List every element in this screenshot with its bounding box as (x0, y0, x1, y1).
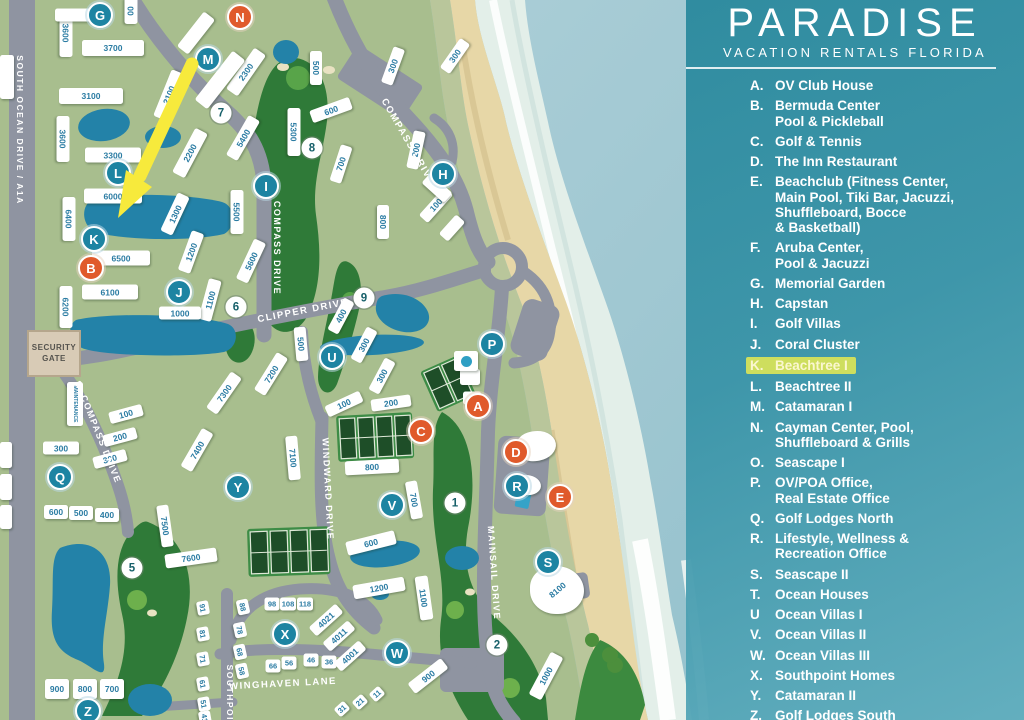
map-marker-l[interactable]: L (105, 160, 131, 186)
building-300: 300 (43, 442, 79, 455)
building-800: 800 (345, 459, 400, 476)
legend-item-letter: G. (750, 276, 775, 291)
legend-item-letter: J. (750, 337, 775, 352)
legend-item-x[interactable]: X.Southpoint Homes (750, 668, 1018, 683)
map-marker-m[interactable]: M (195, 46, 221, 72)
legend-item-h[interactable]: H.Capstan (750, 296, 1018, 311)
legend-item-b[interactable]: B.Bermuda CenterPool & Pickleball (750, 98, 1018, 129)
map-marker-9: 9 (354, 288, 375, 309)
legend-item-t[interactable]: T.Ocean Houses (750, 587, 1018, 602)
legend-item-label: Catamaran I (775, 399, 852, 414)
brand-tagline: VACATION RENTALS FLORIDA (686, 45, 1024, 60)
legend-item-letter: R. (750, 531, 775, 562)
map-marker-e[interactable]: E (547, 484, 573, 510)
legend-item-label: Capstan (775, 296, 828, 311)
legend-item-letter: Q. (750, 511, 775, 526)
map-marker-c[interactable]: C (408, 418, 434, 444)
legend-item-c[interactable]: C.Golf & Tennis (750, 134, 1018, 149)
legend-item-letter: I. (750, 316, 775, 331)
building-71: 71 (196, 651, 210, 667)
legend-item-label: Memorial Garden (775, 276, 885, 291)
legend-item-label: Beachtree II (775, 379, 852, 394)
legend-item-k[interactable]: K.Beachtree I (746, 357, 856, 374)
map-marker-r[interactable]: R (504, 473, 530, 499)
legend-item-o[interactable]: O.Seascape I (750, 455, 1018, 470)
map-marker-8: 8 (302, 138, 323, 159)
legend-item-letter: E. (750, 174, 775, 235)
building (454, 351, 478, 371)
legend-item-letter: Y. (750, 688, 775, 703)
building-91: 91 (196, 600, 210, 616)
building-46: 46 (304, 654, 319, 667)
legend-item-e[interactable]: E.Beachclub (Fitness Center,Main Pool, T… (750, 174, 1018, 235)
map-marker-2: 2 (487, 635, 508, 656)
map-marker-s[interactable]: S (535, 549, 561, 575)
legend-item-letter: H. (750, 296, 775, 311)
map-marker-a[interactable]: A (465, 393, 491, 419)
road-label-compass-drive: COMPASS DRIVE (272, 201, 282, 295)
building-66: 66 (266, 660, 281, 673)
map-marker-5: 5 (122, 558, 143, 579)
legend-item-y[interactable]: Y.Catamaran II (750, 688, 1018, 703)
legend-item-label: Ocean Villas I (775, 607, 863, 622)
legend-item-label: Ocean Villas III (775, 648, 870, 663)
road-label-southpoint: SOUTHPOINT (225, 665, 235, 720)
legend-item-letter: T. (750, 587, 775, 602)
legend-item-label: Beachtree I (775, 358, 848, 373)
legend-item-z[interactable]: Z.Golf Lodges South (750, 708, 1018, 720)
legend-item-letter: U (750, 607, 775, 622)
legend-item-letter: W. (750, 648, 775, 663)
legend-item-label: Bermuda CenterPool & Pickleball (775, 98, 884, 129)
security-gate: SECURITY GATE (27, 330, 81, 377)
legend-item-label: Aruba Center,Pool & Jacuzzi (775, 240, 870, 271)
map-marker-6: 6 (226, 297, 247, 318)
legend-item-m[interactable]: M.Catamaran I (750, 399, 1018, 414)
legend-item-s[interactable]: S.Seascape II (750, 567, 1018, 582)
legend-item-label: Beachclub (Fitness Center,Main Pool, Tik… (775, 174, 954, 235)
building (0, 474, 12, 500)
map-marker-q[interactable]: Q (47, 464, 73, 490)
legend-item-label: Cayman Center, Pool,Shuffleboard & Grill… (775, 420, 914, 451)
building-8100: 8100 (530, 566, 584, 614)
map-marker-g[interactable]: G (87, 2, 113, 28)
building-400: 400 (95, 508, 119, 522)
building (0, 55, 14, 99)
legend-item-letter: C. (750, 134, 775, 149)
legend-list: A.OV Club HouseB.Bermuda CenterPool & Pi… (686, 78, 1024, 720)
map-marker-1: 1 (445, 493, 466, 514)
building-81: 81 (196, 626, 210, 642)
building-3100: 3100 (59, 88, 123, 104)
legend-item-l[interactable]: L.Beachtree II (750, 379, 1018, 394)
legend-item-letter: P. (750, 475, 775, 506)
building-500: 500 (69, 506, 93, 520)
legend-panel: PARADISE VACATION RENTALS FLORIDA A.OV C… (686, 0, 1024, 720)
legend-item-a[interactable]: A.OV Club House (750, 78, 1018, 93)
brand-title: PARADISE (696, 2, 1014, 44)
legend-item-letter: K. (750, 358, 775, 373)
map-marker-k[interactable]: K (81, 226, 107, 252)
legend-item-letter: V. (750, 627, 775, 642)
legend-item-label: Coral Cluster (775, 337, 860, 352)
legend-item-label: Lifestyle, Wellness &Recreation Office (775, 531, 909, 562)
legend-item-letter: S. (750, 567, 775, 582)
legend-item-label: OV Club House (775, 78, 873, 93)
legend-item-letter: X. (750, 668, 775, 683)
legend-item-letter: A. (750, 78, 775, 93)
legend-item-letter: O. (750, 455, 775, 470)
legend-item-label: Catamaran II (775, 688, 856, 703)
building-51: 51 (197, 696, 211, 712)
legend-item-label: Southpoint Homes (775, 668, 895, 683)
map-marker-v[interactable]: V (379, 492, 405, 518)
legend-item-f[interactable]: F.Aruba Center,Pool & Jacuzzi (750, 240, 1018, 271)
legend-item-p[interactable]: P.OV/POA Office,Real Estate Office (750, 475, 1018, 506)
map-marker-y[interactable]: Y (225, 474, 251, 500)
legend-item-letter: F. (750, 240, 775, 271)
legend-item-label: Ocean Villas II (775, 627, 866, 642)
legend-item-letter: L. (750, 379, 775, 394)
legend-item-j[interactable]: J.Coral Cluster (750, 337, 1018, 352)
legend-item-v[interactable]: V.Ocean Villas II (750, 627, 1018, 642)
building-108: 108 (280, 598, 296, 611)
legend-item-label: Seascape I (775, 455, 845, 470)
road-label-south-ocean-drive-a1a: SOUTH OCEAN DRIVE / A1A (15, 55, 25, 204)
building (0, 442, 12, 468)
security-gate-label: SECURITY GATE (29, 343, 79, 364)
building-56: 56 (282, 657, 297, 670)
legend-item-r[interactable]: R.Lifestyle, Wellness &Recreation Office (750, 531, 1018, 562)
legend-item-label: Ocean Houses (775, 587, 869, 602)
paradise-resort-map: 3600003700310036003300600064006500610062… (0, 0, 1024, 720)
building-5300: 5300 (288, 108, 301, 156)
building (460, 369, 480, 385)
building-5500: 5500 (231, 190, 244, 234)
building-500: 500 (310, 51, 322, 85)
building-6100: 6100 (82, 285, 138, 300)
map-marker-i[interactable]: I (253, 173, 279, 199)
map-marker-z[interactable]: Z (75, 698, 101, 720)
legend-item-label: OV/POA Office,Real Estate Office (775, 475, 890, 506)
building-41: 41 (198, 710, 212, 720)
building-98: 98 (265, 598, 280, 611)
legend-item-label: Golf Lodges South (775, 708, 896, 720)
building (0, 505, 12, 529)
building-118: 118 (297, 598, 313, 611)
building-600: 600 (44, 505, 68, 519)
map-marker-w[interactable]: W (384, 640, 410, 666)
building-3700: 3700 (82, 40, 144, 56)
legend-item-letter: N. (750, 420, 775, 451)
legend-item-letter: Z. (750, 708, 775, 720)
map-marker-p[interactable]: P (479, 331, 505, 357)
map-marker-n[interactable]: N (227, 4, 253, 30)
building-6000: 6000 (84, 189, 142, 204)
legend-item-d[interactable]: D.The Inn Restaurant (750, 154, 1018, 169)
legend-item-letter: D. (750, 154, 775, 169)
legend-item-label: Golf & Tennis (775, 134, 862, 149)
map-marker-b[interactable]: B (78, 255, 104, 281)
legend-item-q[interactable]: Q.Golf Lodges North (750, 511, 1018, 526)
building-6200: 6200 (60, 286, 73, 328)
building-800: 800 (73, 679, 97, 699)
map-marker-d[interactable]: D (503, 439, 529, 465)
legend-item-label: The Inn Restaurant (775, 154, 897, 169)
building-00: 00 (125, 0, 138, 24)
legend-item-i[interactable]: I.Golf Villas (750, 316, 1018, 331)
map-marker-j[interactable]: J (166, 279, 192, 305)
legend-item-label: Golf Villas (775, 316, 841, 331)
map-marker-7: 7 (211, 103, 232, 124)
legend-item-g[interactable]: G.Memorial Garden (750, 276, 1018, 291)
building-3600: 3600 (57, 116, 70, 162)
map-marker-x[interactable]: X (272, 621, 298, 647)
legend-item-n[interactable]: N.Cayman Center, Pool,Shuffleboard & Gri… (750, 420, 1018, 451)
legend-item-label: Seascape II (775, 567, 849, 582)
building-6400: 6400 (63, 197, 76, 241)
map-marker-u[interactable]: U (319, 344, 345, 370)
legend-item-u[interactable]: UOcean Villas I (750, 607, 1018, 622)
building-900: 900 (45, 679, 69, 699)
building-800: 800 (377, 205, 389, 239)
title-divider (686, 67, 996, 69)
building-61: 61 (196, 676, 210, 692)
building-700: 700 (100, 679, 124, 699)
building-1000: 1000 (159, 307, 201, 320)
legend-item-letter: M. (750, 399, 775, 414)
legend-item-label: Golf Lodges North (775, 511, 894, 526)
legend-item-w[interactable]: W.Ocean Villas III (750, 648, 1018, 663)
legend-item-letter: B. (750, 98, 775, 129)
map-marker-h[interactable]: H (430, 161, 456, 187)
